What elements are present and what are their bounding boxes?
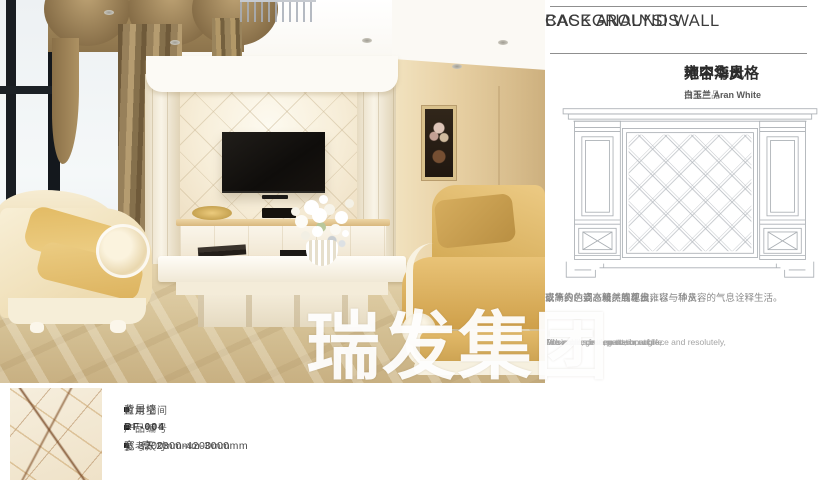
- wall-elevation-drawing: [560, 102, 820, 286]
- recessed-light: [170, 40, 180, 45]
- sofa-pillow: [434, 193, 517, 249]
- table-apron: [176, 282, 388, 295]
- description-cn-line: 或简约、或高雅、或尊贵，以一种从容的气息诠释生活。: [545, 292, 783, 306]
- chandelier: [240, 0, 316, 22]
- case-theme: 雍容华贵: [684, 62, 744, 83]
- sofa-arm-scroll: [96, 224, 150, 278]
- product-info: 应用空间 背景墙 产品编号 RF-004 参考尺寸 宽 3200mm-4200m…: [124, 401, 544, 471]
- sofa-left: [0, 190, 152, 336]
- sofa-foot: [30, 322, 44, 333]
- panel-header-line2: CASE ANALYSIS: [545, 12, 680, 32]
- header-rule-bottom: [550, 53, 807, 54]
- recessed-light: [104, 10, 114, 15]
- dimension-height: 高 2300mm-3000mm: [142, 438, 248, 453]
- recessed-light: [362, 38, 372, 43]
- sofa-skirt: [8, 298, 146, 324]
- info-value: 背景墙: [124, 402, 157, 417]
- header-rule-top: [550, 6, 807, 7]
- flower-arrangement: [282, 192, 366, 274]
- info-row-dimensions: 参考尺寸 宽 3200mm-4200mm 高 2300mm-3000mm: [124, 437, 544, 453]
- flower-blooms: [312, 208, 327, 223]
- recessed-light: [498, 40, 508, 45]
- recommended-product: 白玉兰 Aran White: [684, 88, 761, 101]
- decor-bowl: [192, 206, 232, 220]
- wall-art-frame: [422, 106, 456, 180]
- brand-watermark: 瑞发集团: [306, 310, 626, 384]
- info-row-application: 应用空间 背景墙: [124, 401, 544, 417]
- product-code: RF-004: [124, 421, 165, 433]
- marble-swatch: [10, 388, 102, 480]
- ceiling-soffit: [146, 56, 398, 92]
- window-frame: [0, 86, 60, 94]
- tv: [222, 132, 325, 193]
- sofa-foot: [110, 320, 126, 333]
- catalog-page: 瑞发集团 BACKGROUND WALL CASE ANALYSIS 地中海风格…: [0, 0, 828, 484]
- info-row-product-code: 产品编号 RF-004: [124, 419, 544, 435]
- flower-leaves: [316, 222, 326, 232]
- recessed-light: [452, 64, 462, 69]
- flower-vase: [306, 240, 338, 266]
